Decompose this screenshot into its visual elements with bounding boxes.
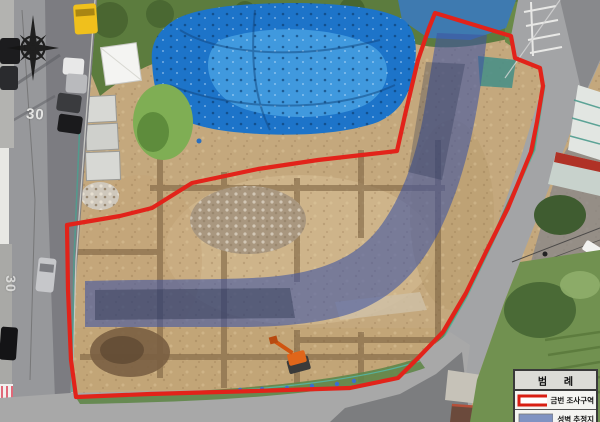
legend-title: 범 례 — [515, 371, 596, 391]
container — [85, 95, 116, 123]
stone-scatter-texture — [190, 186, 306, 254]
legend: 범 례 금번 조사구역 성벽 추정지 — [513, 369, 598, 422]
bright-tree-shade — [137, 112, 169, 152]
white-canopy — [101, 43, 142, 86]
tree — [92, 2, 128, 38]
car-silver — [35, 257, 56, 293]
container — [85, 123, 118, 151]
wall-rubble-dark — [95, 288, 295, 320]
stone-pile-texture — [81, 182, 119, 210]
container — [86, 151, 121, 180]
aerial-photo-figure: 30 30 범 례 금번 조사구역 성벽 추정지 — [0, 0, 600, 422]
legend-swatch-survey-area — [517, 394, 547, 407]
grass-light — [560, 271, 600, 299]
legend-label-survey-area: 금번 조사구역 — [551, 395, 594, 406]
red-outline-swatch — [519, 396, 547, 405]
car-silver — [65, 73, 87, 93]
legend-swatch-wall-site — [517, 413, 553, 422]
car-black — [57, 113, 83, 134]
blue-fill-swatch — [519, 414, 553, 422]
car-dark — [0, 66, 18, 90]
speed-limit-30-marking: 30 — [25, 105, 45, 123]
speed-limit-30-marking: 30 — [3, 275, 19, 293]
tree-cluster — [534, 195, 586, 235]
building-roof — [0, 148, 9, 244]
car-gray — [56, 92, 82, 113]
legend-row-wall: 성벽 추정지 — [515, 409, 596, 422]
legend-row-survey: 금번 조사구역 — [515, 391, 596, 409]
car-white — [62, 57, 84, 75]
aerial-photo — [0, 0, 600, 422]
container-buildings — [85, 95, 120, 180]
legend-label-wall-site: 성벽 추정지 — [557, 414, 594, 422]
car-black — [0, 326, 18, 360]
car-yellow — [73, 3, 98, 35]
utility-pole — [543, 252, 548, 257]
compass-center — [30, 45, 36, 51]
car-dark — [0, 38, 20, 64]
soil-heap-dark — [100, 336, 144, 364]
